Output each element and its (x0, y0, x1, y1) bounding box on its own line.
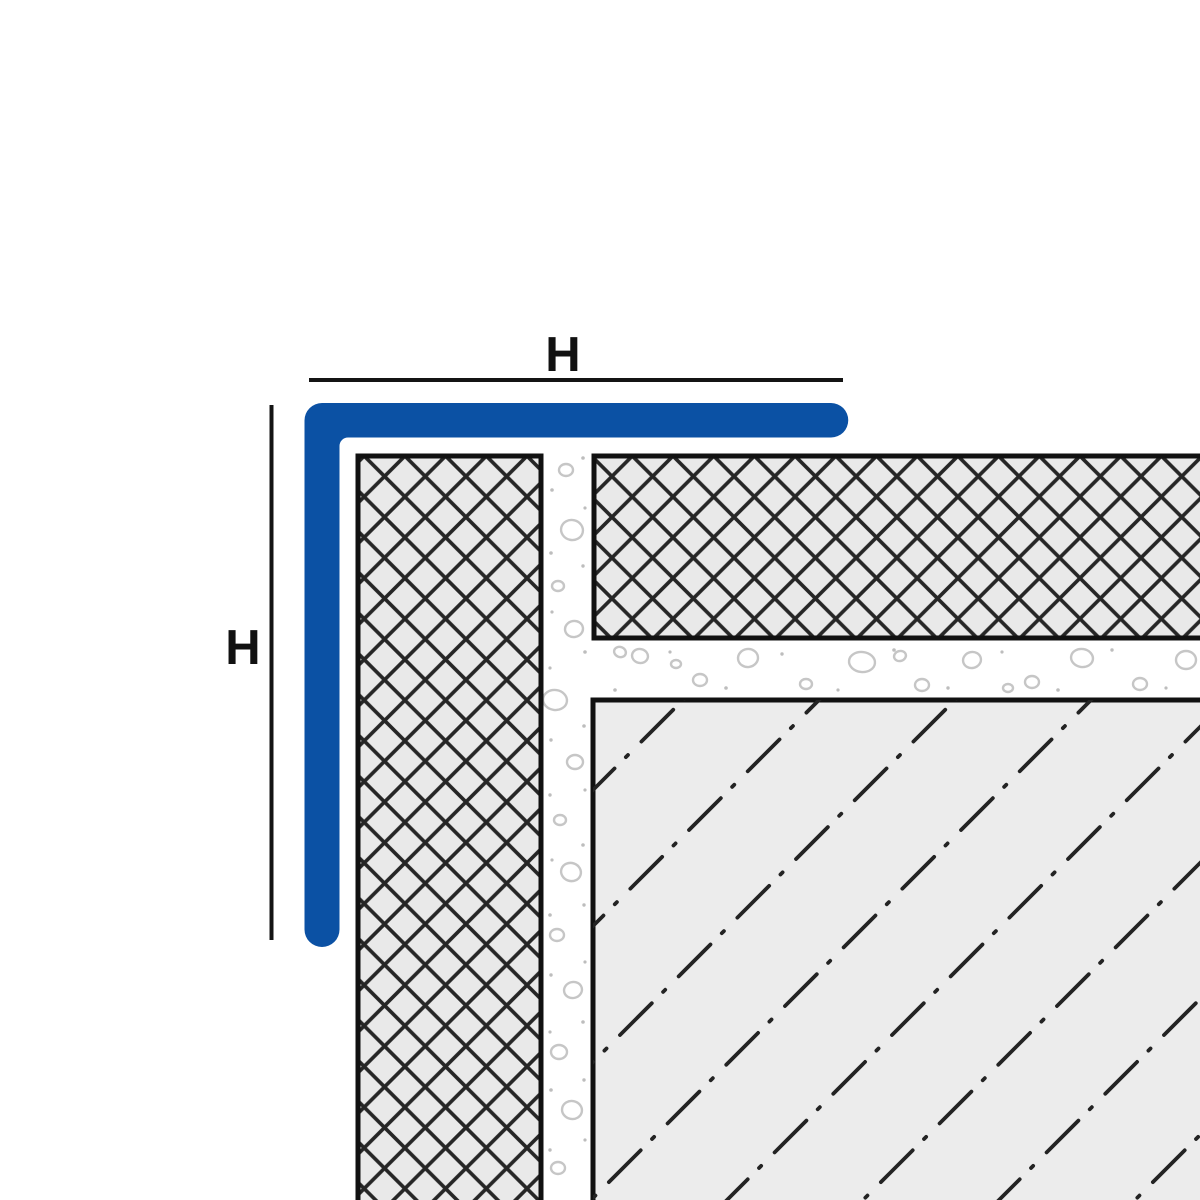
svg-text:H: H (225, 621, 260, 675)
svg-text:H: H (545, 328, 580, 382)
